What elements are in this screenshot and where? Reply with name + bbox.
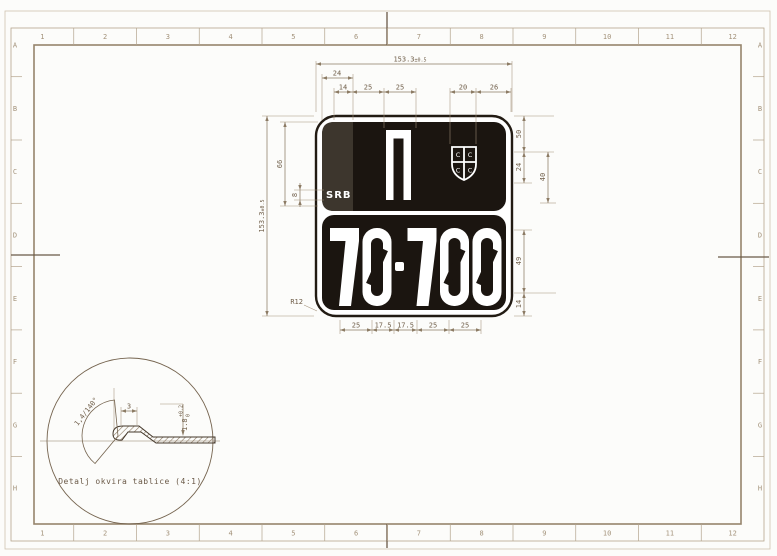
thickness-value: 1.8 [181,418,189,431]
grid-col-label: 12 [728,530,736,538]
grid-col-label: 5 [291,530,295,538]
grid-col-label: 5 [291,33,295,41]
angle-label: 1,4/140° [73,396,100,427]
dimension: 49 [515,230,526,293]
grid-row-label: F [13,358,17,366]
dimension: 24 [515,152,526,183]
dimension-radius-label: R12 [290,298,303,306]
firesteel-glyph: С [468,151,473,159]
firesteel-glyph: С [456,167,461,175]
dimension-label: 14 [515,300,523,308]
dimension: 24 [322,70,353,80]
dimension-label: 17.5 [397,322,414,330]
dimension-label: 153.3±0.5 [393,56,426,64]
grid-col-label: 9 [542,530,546,538]
grid-col-label: 11 [666,530,674,538]
dimension-label: 50 [515,130,523,138]
grid-row-label: G [13,421,17,429]
dimension-label: 14 [339,84,347,92]
dimension-label: 20 [459,84,467,92]
grid-row-label: H [13,485,17,493]
grid-row-label: B [758,105,762,113]
dimension: 25 [340,322,372,332]
dimension: 3 [121,403,137,413]
dimension-label: 8 [291,193,299,197]
plate-digit-0 [363,228,392,306]
dimension: 8 [291,183,302,207]
dimension: 153.3±0.5 [258,116,269,316]
grid-col-label: 12 [728,33,736,41]
grid-col-label: 11 [666,33,674,41]
dimension-label: 25 [352,322,360,330]
detail-caption: Detalj okvira tablice (4:1) [58,477,202,486]
grid-col-label: 7 [417,530,421,538]
dimension: 25 [352,84,384,94]
dimension: 25 [384,84,416,94]
grid-row-label: E [758,295,762,303]
dimension-label: 25 [364,84,372,92]
dimension: 17.5 [394,322,417,332]
dimension-label: 26 [490,84,498,92]
grid-col-label: 6 [354,33,358,41]
dimension: 50 [515,116,526,152]
dimension: 25 [417,322,449,332]
dimension-label: 153.3±0.5 [258,199,266,232]
grid-col-label: 2 [103,33,107,41]
grid-row-label: A [758,42,763,50]
dimension: 17.5 [372,322,394,332]
grid-col-label: 4 [229,33,233,41]
grid-row-label: D [13,231,17,239]
grid-col-label: 1 [40,33,44,41]
dimension: 14 [515,293,526,316]
dimension: 20 [450,84,476,94]
frame-detail-view: 1,4/140° 1.8 +0.2 0 Detalj okvira tablic… [40,358,220,524]
grid-row-label: A [13,42,18,50]
plate-digit-0 [473,228,502,306]
firesteel-glyph: С [468,167,473,175]
grid-col-label: 1 [40,530,44,538]
thickness-label: 1.8 +0.2 0 [179,405,192,431]
grid-row-label: D [758,231,762,239]
dimension: 14 [334,84,352,94]
dimension-label: 3 [127,403,131,411]
grid-row-label: H [758,485,762,493]
grid-row-label: G [758,421,762,429]
grid-col-label: 7 [417,33,421,41]
dimension: 40 [539,152,550,203]
plate-country-code: SRB [326,190,352,201]
dimension-label: 25 [461,322,469,330]
grid-col-label: 4 [229,530,233,538]
grid-col-label: 3 [166,530,170,538]
grid-row-label: B [13,105,17,113]
grid-col-label: 10 [603,33,611,41]
dimension-label: 40 [539,173,547,181]
grid-row-label: E [13,295,17,303]
dimension: 153.3±0.5 [316,56,512,66]
grid-col-label: 2 [103,530,107,538]
grid-col-label: 9 [542,33,546,41]
radius-leader [304,305,317,311]
grid-col-label: 8 [480,530,484,538]
drawing-sheet: 112233445566778899101011111212AABBCCDDEE… [0,0,777,556]
grid-row-label: C [758,168,762,176]
grid-row-label: C [13,168,17,176]
grid-col-label: 10 [603,530,611,538]
grid-col-label: 8 [480,33,484,41]
thickness-tol-upper: +0.2 [179,405,185,417]
plate-dash [395,262,404,271]
dimension: 26 [476,84,511,94]
dimension: 25 [449,322,481,332]
dimension-label: 66 [276,160,284,168]
plate-drawing: SRB С С С С [316,116,512,316]
grid-row-label: F [758,358,762,366]
dimension-label: 24 [333,70,341,78]
thickness-tol-lower: 0 [186,414,192,417]
firesteel-glyph: С [456,151,461,159]
dimension-label: 24 [515,163,523,171]
grid-col-label: 6 [354,530,358,538]
frame-profile-section [113,426,215,443]
drawing-canvas: 112233445566778899101011111212AABBCCDDEE… [0,0,777,556]
grid-col-label: 3 [166,33,170,41]
dimension-label: 25 [396,84,404,92]
dimension-label: 17.5 [375,322,392,330]
dimension-label: 25 [429,322,437,330]
plate-digit-0 [440,228,469,306]
dimension-label: 49 [515,257,523,265]
dimension: 66 [276,122,287,206]
